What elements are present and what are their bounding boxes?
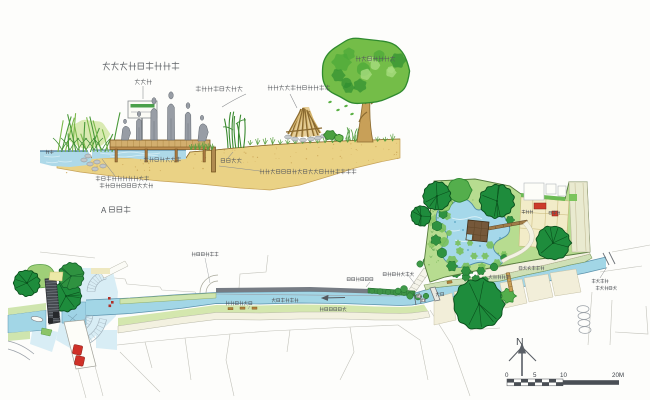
svg-text:5: 5: [533, 372, 537, 379]
svg-text:A: A: [101, 206, 107, 215]
svg-text:10: 10: [560, 372, 567, 379]
svg-text:0: 0: [505, 372, 509, 379]
svg-text:20M: 20M: [612, 372, 624, 379]
svg-text:N: N: [516, 336, 524, 348]
